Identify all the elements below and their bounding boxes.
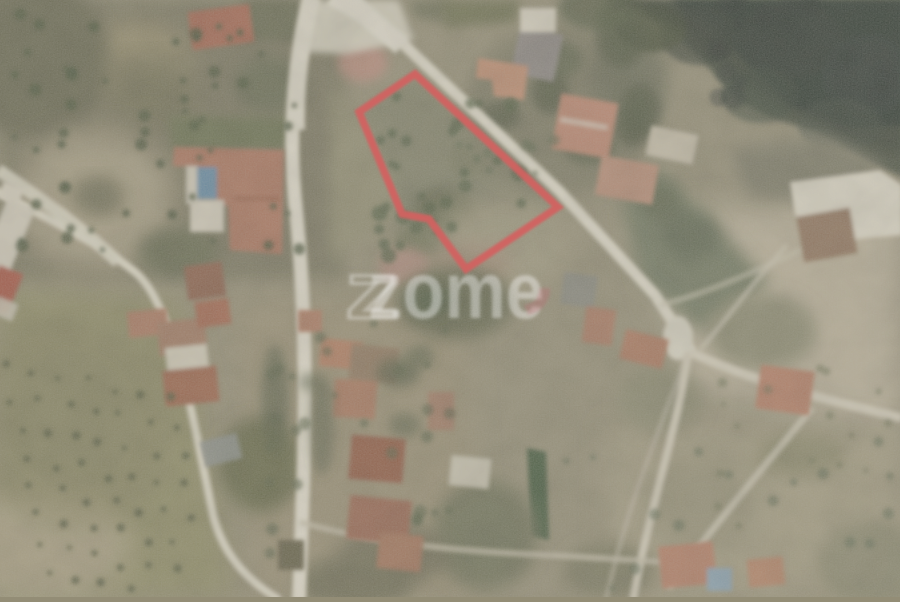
svg-text:zome: zome [368, 246, 544, 335]
